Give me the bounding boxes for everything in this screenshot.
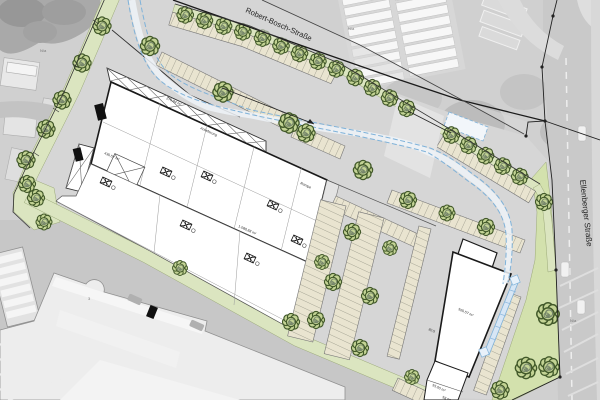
svg-text:N/a: N/a (348, 26, 355, 31)
svg-text:N/a: N/a (570, 318, 577, 323)
svg-text:N/a: N/a (40, 48, 47, 53)
